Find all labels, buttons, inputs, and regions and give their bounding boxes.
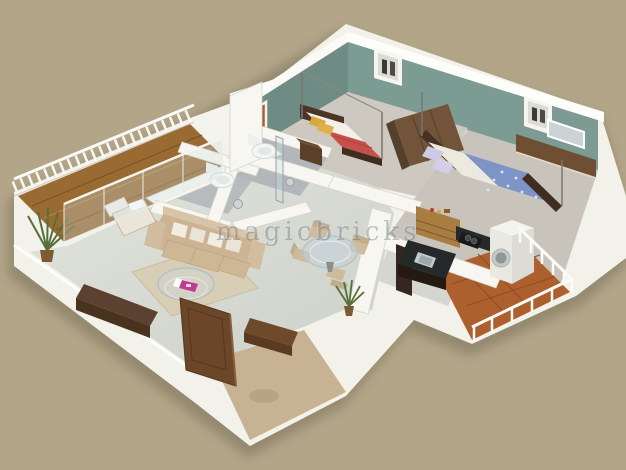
coffee-table bbox=[158, 268, 214, 300]
watermark-text: magicbricks bbox=[216, 217, 421, 247]
doormat-shadow bbox=[249, 389, 279, 403]
floor-drain-2 bbox=[286, 178, 294, 186]
floor-drain-1 bbox=[234, 200, 243, 209]
shower-glass-panel bbox=[276, 136, 283, 203]
washing-machine bbox=[490, 220, 534, 284]
interior-wall bbox=[230, 82, 262, 172]
floor-plan-render: magicbricks magicbricks bbox=[0, 0, 626, 470]
watermark: magicbricks magicbricks bbox=[215, 216, 421, 247]
